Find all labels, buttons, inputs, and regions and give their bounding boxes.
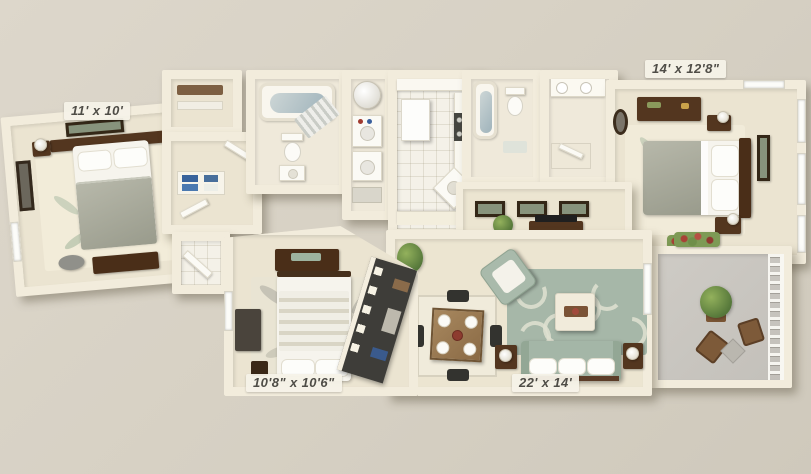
dining-chair [447,369,469,381]
closet-nook [551,143,591,169]
dresser-items [291,253,321,261]
queen-bed [643,141,751,215]
toilet [507,96,523,116]
sofa-pillow [529,358,557,375]
washer-knob [358,119,363,124]
bed-blanket [643,141,701,215]
refrigerator [401,99,430,141]
sofa-pillow [587,358,615,375]
table-lamp [626,347,639,360]
head-rail [277,271,351,277]
dimension-label-bedroom-bottom: 10'8" x 10'6" [246,374,342,392]
queen-bed [72,140,157,248]
ottoman [58,254,85,271]
place-setting [437,314,451,328]
washer-knob [367,119,372,124]
pillow [711,179,739,211]
room-bathroom-1 [246,70,348,194]
oval-mirror [613,109,628,135]
blue-towels [182,184,198,191]
dresser-items [681,103,689,109]
water-heater [353,81,381,109]
floor-plan-scene: 11' x 10' 14' x 12'8" 10'8" x 10'6" 22' … [0,0,811,474]
ac-unit [352,187,382,203]
entry-door [182,250,213,279]
dresser [275,249,339,271]
table-lamp [499,349,512,362]
window [797,153,806,205]
place-setting [436,341,450,355]
room-entry [172,232,230,294]
dryer [352,151,382,181]
dimension-label-bedroom-top-left: 11' x 10' [64,102,130,120]
toilet [284,142,301,162]
window [643,263,652,315]
washer [352,115,382,147]
dining-chair [447,290,469,302]
sheet-fold [701,141,708,215]
white-towels [204,184,218,191]
decor-bowl [572,308,579,315]
closet-linens [177,101,223,110]
door [558,143,584,159]
washer-door [360,126,375,141]
window [797,215,806,253]
table-lamp [717,111,729,123]
sofa-pillow [558,358,586,375]
blue-towels [204,175,218,182]
closet-shelf-items [392,278,410,292]
railing-planter [674,232,720,247]
armchair-cushion [491,258,527,294]
wall-art [757,135,770,181]
dining-floor-inlay [417,295,497,377]
room-utility [342,70,394,220]
bathtub-basin [480,91,492,133]
linen-shelf [177,171,225,195]
dresser-items [647,102,661,108]
dryer-door [360,160,375,175]
coffee-table [555,293,595,331]
sink-vanity [279,165,305,181]
closet-shelf-items [370,347,388,361]
room-living [386,230,652,396]
sink-basin [556,82,568,94]
bed-blanket [279,291,349,351]
toilet-tank [281,133,303,141]
dining-table [430,308,485,363]
sink-basin [288,169,298,179]
table-lamp [727,213,739,225]
window [10,221,22,262]
tall-dresser [235,309,261,351]
dimension-label-living-room: 22' x 14' [512,374,579,392]
door [179,198,209,218]
toilet-tank [505,87,525,95]
bath-mat [503,141,527,153]
window [743,80,785,89]
place-setting [464,315,478,329]
pillow [711,145,739,177]
sink-basin [580,82,592,94]
window [797,99,806,143]
dresser [637,97,701,121]
blue-towels [182,175,198,182]
patio-chair [737,317,765,347]
balcony-railing [768,254,784,380]
pillow [77,149,113,172]
closet-rod-clothes [177,85,223,95]
room-bathroom-2 [462,70,542,186]
wall-mirror [15,160,34,211]
pillow [113,146,149,169]
dimension-label-bedroom-top-right: 14' x 12'8" [645,60,726,78]
dining-chair [490,325,502,347]
bathtub [473,81,497,139]
tv [535,215,577,222]
headboard [739,138,751,218]
place-setting [463,342,477,356]
room-closet [162,70,242,136]
centerpiece [452,330,464,342]
room-balcony [650,246,792,388]
window [224,291,233,331]
bed-blanket [75,176,157,250]
closet-shelf-items [381,308,401,335]
potted-plant [700,286,732,318]
